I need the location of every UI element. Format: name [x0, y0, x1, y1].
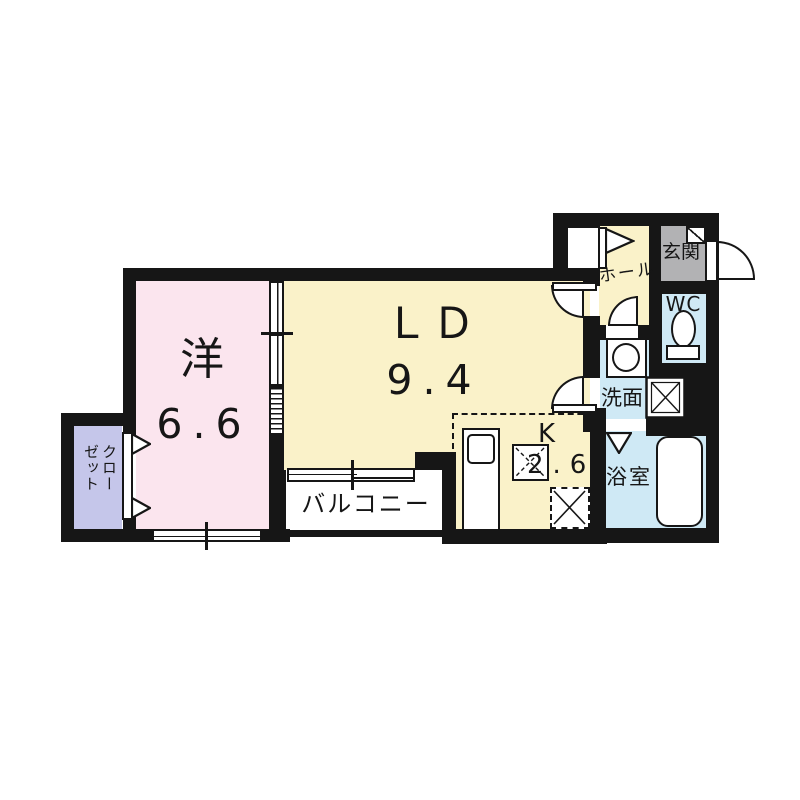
- balcony-window-tick: [351, 460, 354, 490]
- bathroom-label: 浴室: [606, 467, 652, 488]
- wall-bottom-kitchen: [442, 529, 607, 544]
- entrance-label: 玄関: [662, 243, 700, 262]
- entrance-door-arc: [717, 241, 755, 280]
- western-ld-partition-panel-hatched: [269, 386, 284, 436]
- balcony-label: バルコニー: [290, 492, 442, 516]
- washbasin: [645, 376, 686, 419]
- living-dining-label: ＬＤ: [372, 303, 492, 346]
- hall-storage-cabinet: [566, 226, 600, 270]
- kitchen-zone-dashed-left: [452, 413, 454, 459]
- wall-closet-left: [61, 413, 74, 542]
- hall-storage-door-triangle-icon: [605, 228, 635, 254]
- western-ld-partition-panel-mid: [269, 334, 284, 386]
- wc-label: WC: [661, 294, 706, 314]
- wall-bottom-right: [590, 528, 719, 543]
- wall-western-left: [123, 268, 136, 435]
- washroom-door-leaf: [552, 404, 597, 413]
- wall-top-right-block: [553, 213, 719, 226]
- wall-right-block-left: [553, 213, 566, 281]
- refrigerator-space: [550, 487, 590, 529]
- floorplan-canvas: 洋 6.6 ＬＤ 9.4 K 2.6 バルコニー クローゼット ホール 玄関 W…: [0, 0, 800, 800]
- hall-door-leaf: [552, 282, 597, 291]
- bathroom-folding-door-icon: [606, 432, 632, 454]
- western-room-label: 洋: [172, 338, 232, 382]
- kitchen-area: 2.6: [527, 452, 595, 478]
- wall-balcony-right: [442, 468, 456, 532]
- kitchen-label: K: [538, 421, 555, 447]
- western-ld-partition-panel-upper: [269, 281, 284, 334]
- living-dining-area: 9.4: [375, 360, 493, 401]
- washroom-label: 洗面: [601, 388, 643, 409]
- toilet-tank: [666, 345, 700, 360]
- kitchen-sink: [467, 434, 495, 464]
- bathroom-door-opening: [606, 419, 646, 431]
- partition-window-tick: [261, 332, 293, 335]
- wall-partition-lower: [269, 436, 284, 542]
- western-window-tick: [205, 522, 208, 550]
- bathtub: [656, 436, 703, 527]
- washing-machine: [606, 338, 647, 378]
- closet-label: クローゼット: [80, 444, 118, 500]
- kitchen-zone-dashed-top: [452, 413, 593, 415]
- wall-ld-hall-seg2: [583, 316, 600, 378]
- wall-top-left: [123, 268, 600, 281]
- closet-door-triangle-bottom-icon: [131, 497, 151, 519]
- western-room-area: 6.6: [138, 404, 270, 445]
